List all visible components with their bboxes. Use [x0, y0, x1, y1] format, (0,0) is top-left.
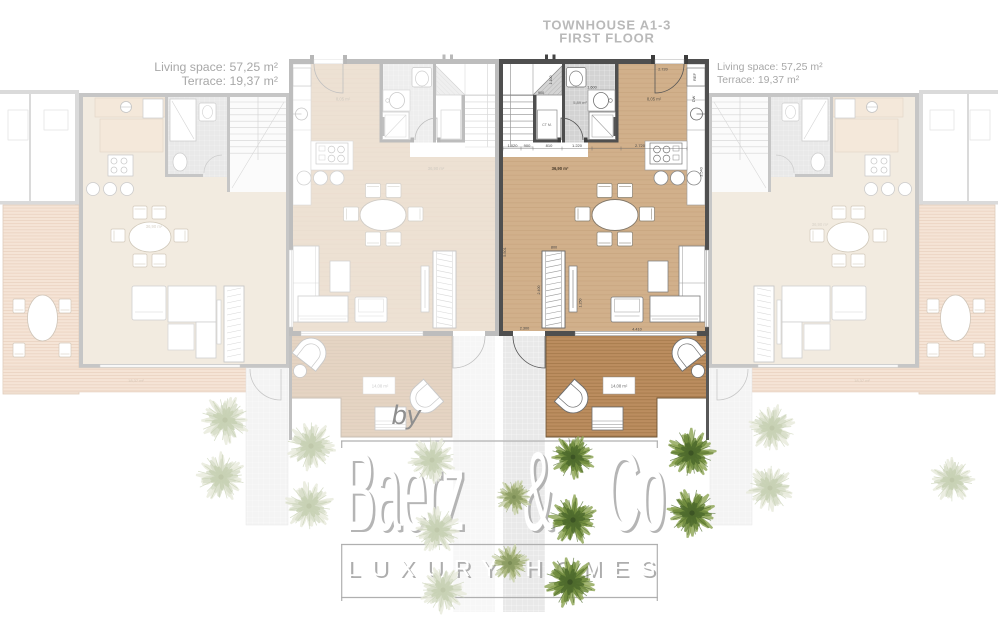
svg-text:DW: DW — [692, 95, 696, 102]
svg-text:1.100: 1.100 — [549, 76, 553, 85]
svg-text:36,90 m²: 36,90 m² — [146, 224, 163, 229]
svg-text:1.250: 1.250 — [579, 299, 583, 308]
svg-text:18,37 m²: 18,37 m² — [854, 378, 870, 383]
svg-text:2.300: 2.300 — [520, 327, 530, 331]
svg-text:Terrace: 19,37 m²: Terrace: 19,37 m² — [182, 74, 278, 88]
svg-text:2.720: 2.720 — [635, 143, 646, 148]
svg-text:Terrace: 19,37 m²: Terrace: 19,37 m² — [717, 74, 800, 86]
svg-text:810: 810 — [546, 143, 553, 148]
svg-text:900: 900 — [538, 91, 544, 95]
svg-text:3.540: 3.540 — [700, 167, 704, 177]
svg-text:5,89 m²: 5,89 m² — [573, 100, 587, 105]
svg-text:5.501: 5.501 — [503, 247, 507, 257]
svg-text:&: & — [523, 431, 554, 555]
svg-text:1.220: 1.220 — [572, 143, 583, 148]
svg-text:1.600: 1.600 — [587, 86, 597, 90]
svg-text:8,05 m²: 8,05 m² — [336, 97, 351, 102]
svg-text:2.400: 2.400 — [537, 286, 541, 295]
svg-text:14,08 m²: 14,08 m² — [611, 384, 628, 389]
svg-text:by: by — [392, 400, 422, 430]
svg-text:8,05 m²: 8,05 m² — [647, 97, 662, 102]
svg-text:36,90 m²: 36,90 m² — [552, 166, 569, 171]
svg-text:4.410: 4.410 — [632, 328, 642, 332]
svg-text:2.720: 2.720 — [658, 68, 668, 72]
svg-text:18,37 m²: 18,37 m² — [128, 378, 144, 383]
svg-text:CT M.: CT M. — [542, 123, 552, 127]
svg-text:36,90 m²: 36,90 m² — [428, 166, 445, 171]
svg-text:Living space: 57,25 m²: Living space: 57,25 m² — [717, 61, 823, 73]
svg-text:1.020: 1.020 — [507, 143, 518, 148]
svg-text:Living space: 57,25 m²: Living space: 57,25 m² — [154, 60, 278, 74]
svg-text:900: 900 — [524, 143, 531, 148]
svg-text:14,08 m²: 14,08 m² — [372, 384, 389, 389]
svg-text:Co: Co — [607, 431, 666, 555]
svg-text:800: 800 — [551, 246, 557, 250]
svg-text:REF: REF — [692, 72, 697, 81]
svg-text:FIRST FLOOR: FIRST FLOOR — [559, 30, 654, 45]
svg-text:36,90 m²: 36,90 m² — [812, 222, 829, 227]
